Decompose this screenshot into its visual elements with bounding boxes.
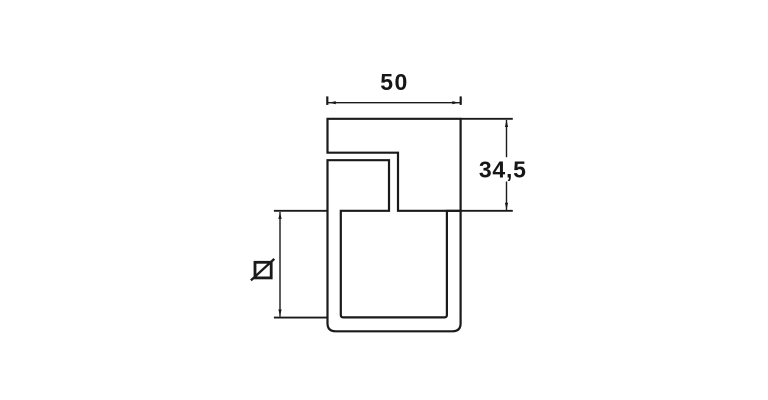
svg-text:34,5: 34,5	[479, 157, 527, 183]
svg-text:50: 50	[380, 69, 409, 95]
